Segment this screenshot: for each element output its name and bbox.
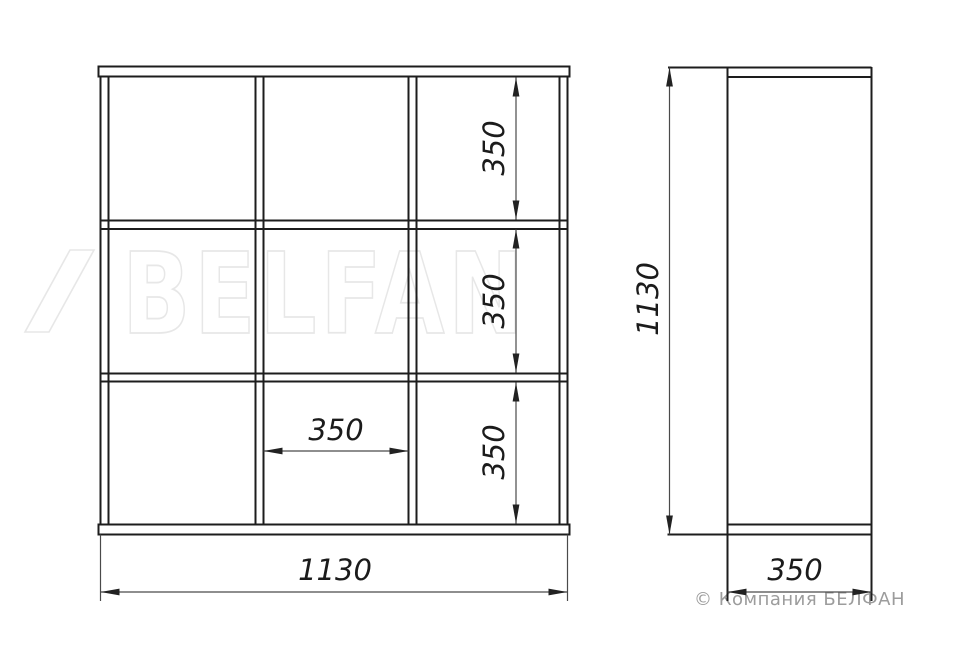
front-right-side-panel <box>560 77 568 525</box>
arrow-up-icon <box>513 78 520 97</box>
front-left-side-panel <box>101 77 109 525</box>
arrow-down-icon <box>513 201 520 220</box>
dim-row2-height-label: 350 <box>477 273 511 328</box>
dim-front-width-label: 1130 <box>298 553 372 587</box>
dim-side-depth-label: 350 <box>767 553 822 587</box>
arrow-left-icon <box>264 448 283 455</box>
dim-row3-height-label: 350 <box>477 424 511 479</box>
arrow-right-icon <box>549 589 568 596</box>
front-shelf-1 <box>101 221 568 230</box>
watermark-text: BELFAN <box>122 229 527 359</box>
dim-cell-width-label: 350 <box>308 413 363 447</box>
watermark-slash-icon <box>25 250 94 332</box>
dim-row1-height-label: 350 <box>477 120 511 175</box>
arrow-right-icon <box>390 448 409 455</box>
arrow-left-icon <box>728 589 747 596</box>
arrow-left-icon <box>101 589 120 596</box>
arrow-up-icon <box>666 68 673 87</box>
front-shelf-2 <box>101 374 568 382</box>
front-top-panel <box>99 67 570 77</box>
arrow-down-icon <box>666 516 673 535</box>
arrow-down-icon <box>513 354 520 373</box>
side-view-dimensions <box>666 68 871 596</box>
side-view <box>668 67 872 601</box>
dim-side-height-label: 1130 <box>631 262 665 336</box>
arrow-down-icon <box>513 505 520 524</box>
arrow-right-icon <box>853 589 872 596</box>
arrow-up-icon <box>513 383 520 402</box>
front-bottom-panel <box>99 525 570 535</box>
drawing-canvas: © Компания БЕЛФАН BELFAN <box>0 0 963 649</box>
